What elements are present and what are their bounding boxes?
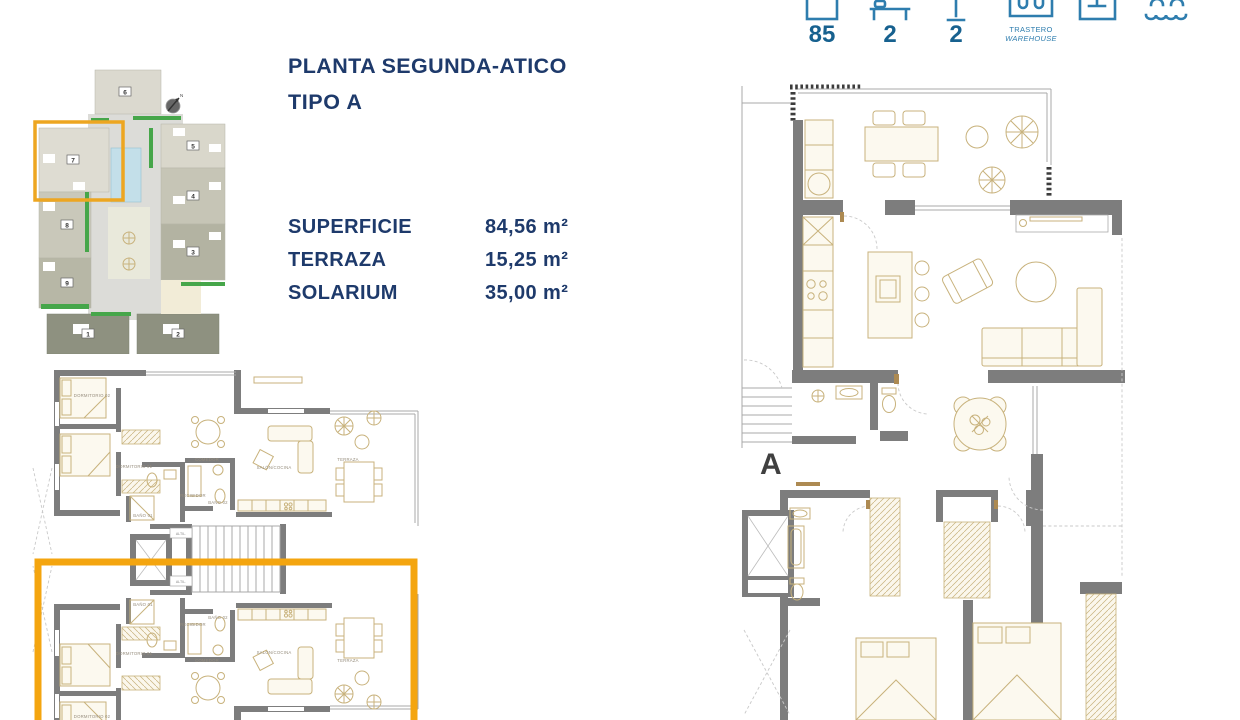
svg-text:9: 9 <box>65 280 69 287</box>
solarium-label: SOLARIUM <box>288 282 485 305</box>
svg-text:8: 8 <box>65 222 69 229</box>
svg-text:RECIBIDOR: RECIBIDOR <box>180 493 206 498</box>
page-title: PLANTA SEGUNDA-ATICO TIPO A <box>288 54 567 115</box>
bed-icon <box>858 0 922 22</box>
pool-summary <box>1132 0 1204 22</box>
svg-text:2: 2 <box>176 331 180 338</box>
svg-text:DORMITORIO 02: DORMITORIO 02 <box>74 393 111 398</box>
wardrobe <box>1086 594 1116 720</box>
svg-text:COMEDOR: COMEDOR <box>195 457 219 462</box>
svg-text:SALÓN/COCINA: SALÓN/COCINA <box>257 650 292 655</box>
overview-floor-plan: ALTIL. ALTIL. DORMITORIO 02 DORMITORIO 0… <box>30 368 430 720</box>
area-summary: 85 <box>790 0 854 48</box>
svg-text:DORMITORIO 01: DORMITORIO 01 <box>116 464 153 469</box>
terraza-value: 15,25 m² <box>485 249 568 272</box>
dining-set <box>192 417 225 448</box>
wardrobe <box>870 498 900 596</box>
kitchen-counter <box>803 217 833 367</box>
terraza-label: TERRAZA <box>288 249 485 272</box>
bed <box>973 623 1061 720</box>
terrace-counter <box>805 120 833 198</box>
communal-stairs <box>742 360 792 442</box>
area-icon <box>790 0 854 22</box>
svg-text:1: 1 <box>86 331 90 338</box>
detail-floor-plan: A <box>730 70 1160 720</box>
bed <box>856 638 936 720</box>
svg-text:N: N <box>180 93 183 98</box>
bathrooms-value: 2 <box>926 22 986 48</box>
svg-text:DORMITORIO 01: DORMITORIO 01 <box>116 651 153 656</box>
bedrooms-summary: 2 <box>858 0 922 48</box>
solarium-value: 35,00 m² <box>485 282 568 305</box>
hall-table <box>954 397 1006 451</box>
svg-text:ALTIL.: ALTIL. <box>176 580 186 584</box>
rug <box>1016 262 1056 302</box>
svg-text:7: 7 <box>71 157 75 164</box>
shower-icon <box>926 0 986 22</box>
superficie-value: 84,56 m² <box>485 216 568 239</box>
svg-text:COMEDOR: COMEDOR <box>195 658 219 663</box>
area-value: 85 <box>790 22 854 48</box>
storage-icon <box>992 0 1070 22</box>
storage-summary: TRASTERO WAREHOUSE <box>992 0 1070 43</box>
bathrooms-summary: 2 <box>926 0 986 48</box>
wardrobe <box>122 430 160 444</box>
armchair <box>941 258 994 305</box>
svg-text:BAÑO 01: BAÑO 01 <box>133 513 153 518</box>
north-arrow: N <box>166 93 183 113</box>
sofa-set <box>253 377 313 473</box>
kitchen-island <box>868 252 929 338</box>
terrace-dining-set <box>865 111 1038 193</box>
svg-text:SALÓN/COCINA: SALÓN/COCINA <box>257 465 292 470</box>
svg-text:5: 5 <box>191 143 195 150</box>
storeroom-box-summary <box>1072 0 1124 22</box>
svg-text:4: 4 <box>191 193 195 200</box>
svg-text:6: 6 <box>123 89 127 96</box>
bedrooms-value: 2 <box>858 22 922 48</box>
svg-text:BAÑO 02: BAÑO 02 <box>208 615 228 620</box>
pool <box>111 148 141 202</box>
svg-text:BAÑO 01: BAÑO 01 <box>133 602 153 607</box>
kitchen-counter <box>238 500 326 511</box>
table-row: SOLARIUM 35,00 m² <box>288 277 568 310</box>
pool-icon <box>1132 0 1204 22</box>
svg-text:RECIBIDOR: RECIBIDOR <box>180 622 206 627</box>
superficie-label: SUPERFICIE <box>288 216 485 239</box>
wardrobe <box>944 522 990 598</box>
svg-text:ALTIL.: ALTIL. <box>176 532 186 536</box>
tv-unit <box>1016 215 1108 232</box>
sofa <box>982 288 1102 366</box>
svg-text:BAÑO 02: BAÑO 02 <box>208 500 228 505</box>
plan-title: PLANTA SEGUNDA-ATICO <box>288 54 567 79</box>
table-row: SUPERFICIE 84,56 m² <box>288 211 568 244</box>
svg-text:TERRAZA: TERRAZA <box>337 457 358 462</box>
surface-table: SUPERFICIE 84,56 m² TERRAZA 15,25 m² SOL… <box>288 211 568 310</box>
box-icon <box>1072 0 1124 22</box>
table-row: TERRAZA 15,25 m² <box>288 244 568 277</box>
storage-label: TRASTERO WAREHOUSE <box>992 25 1070 43</box>
svg-text:DORMITORIO 02: DORMITORIO 02 <box>74 714 111 719</box>
svg-text:TERRAZA: TERRAZA <box>337 658 358 663</box>
elevator <box>742 510 794 597</box>
svg-text:3: 3 <box>191 249 195 256</box>
site-plan: N 6 7 5 4 8 3 9 1 2 <box>33 62 229 354</box>
unit-letter: A <box>760 448 782 481</box>
plan-sheet: 85 2 2 TRASTERO WAREHOUSE <box>0 0 1240 720</box>
plan-type: TIPO A <box>288 90 567 115</box>
bathroom-2-fixtures <box>812 386 896 413</box>
